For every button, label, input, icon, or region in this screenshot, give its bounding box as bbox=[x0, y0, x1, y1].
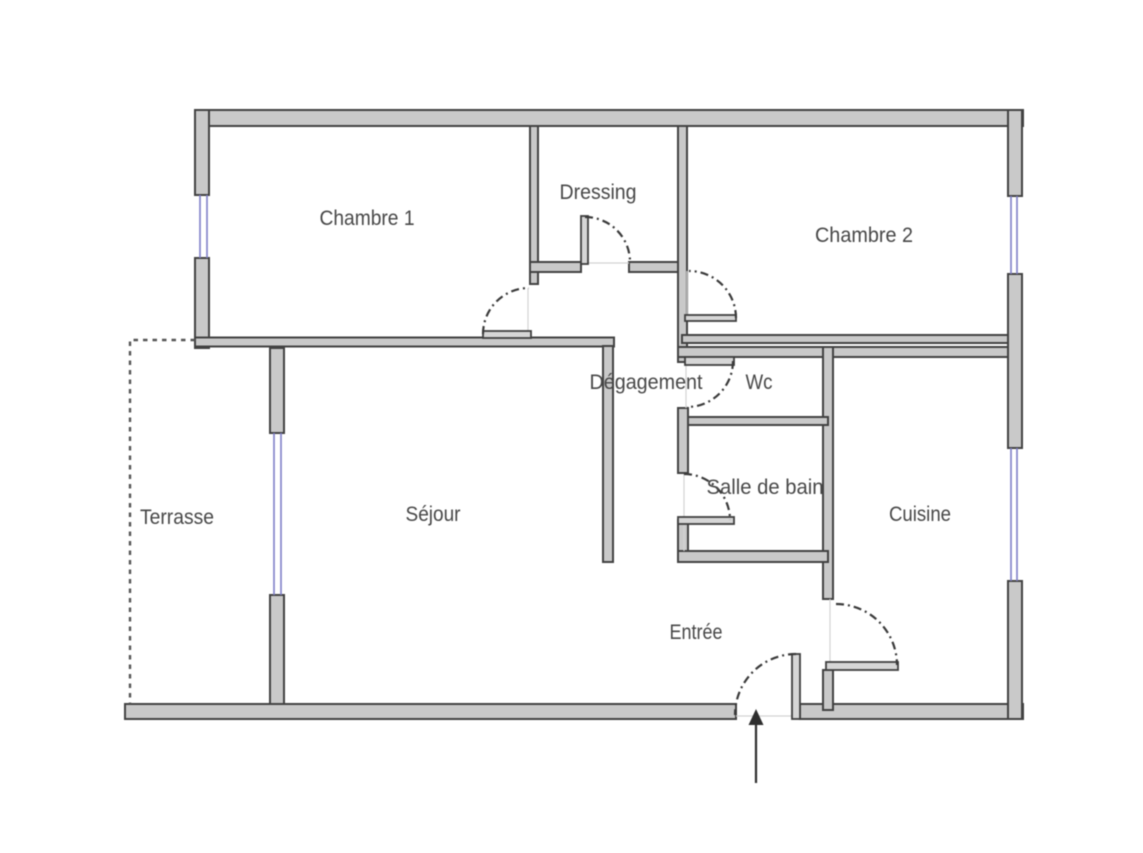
svg-text:Séjour: Séjour bbox=[406, 503, 461, 526]
svg-text:Salle de bain: Salle de bain bbox=[707, 476, 824, 499]
svg-text:Dégagement: Dégagement bbox=[590, 371, 703, 394]
svg-text:Cuisine: Cuisine bbox=[889, 503, 951, 526]
svg-text:Chambre 1: Chambre 1 bbox=[320, 207, 415, 230]
svg-text:Chambre 2: Chambre 2 bbox=[815, 224, 913, 247]
svg-text:Entrée: Entrée bbox=[670, 621, 723, 644]
svg-text:Dressing: Dressing bbox=[560, 181, 637, 204]
svg-text:Wc: Wc bbox=[746, 371, 773, 394]
svg-text:Terrasse: Terrasse bbox=[140, 506, 214, 529]
